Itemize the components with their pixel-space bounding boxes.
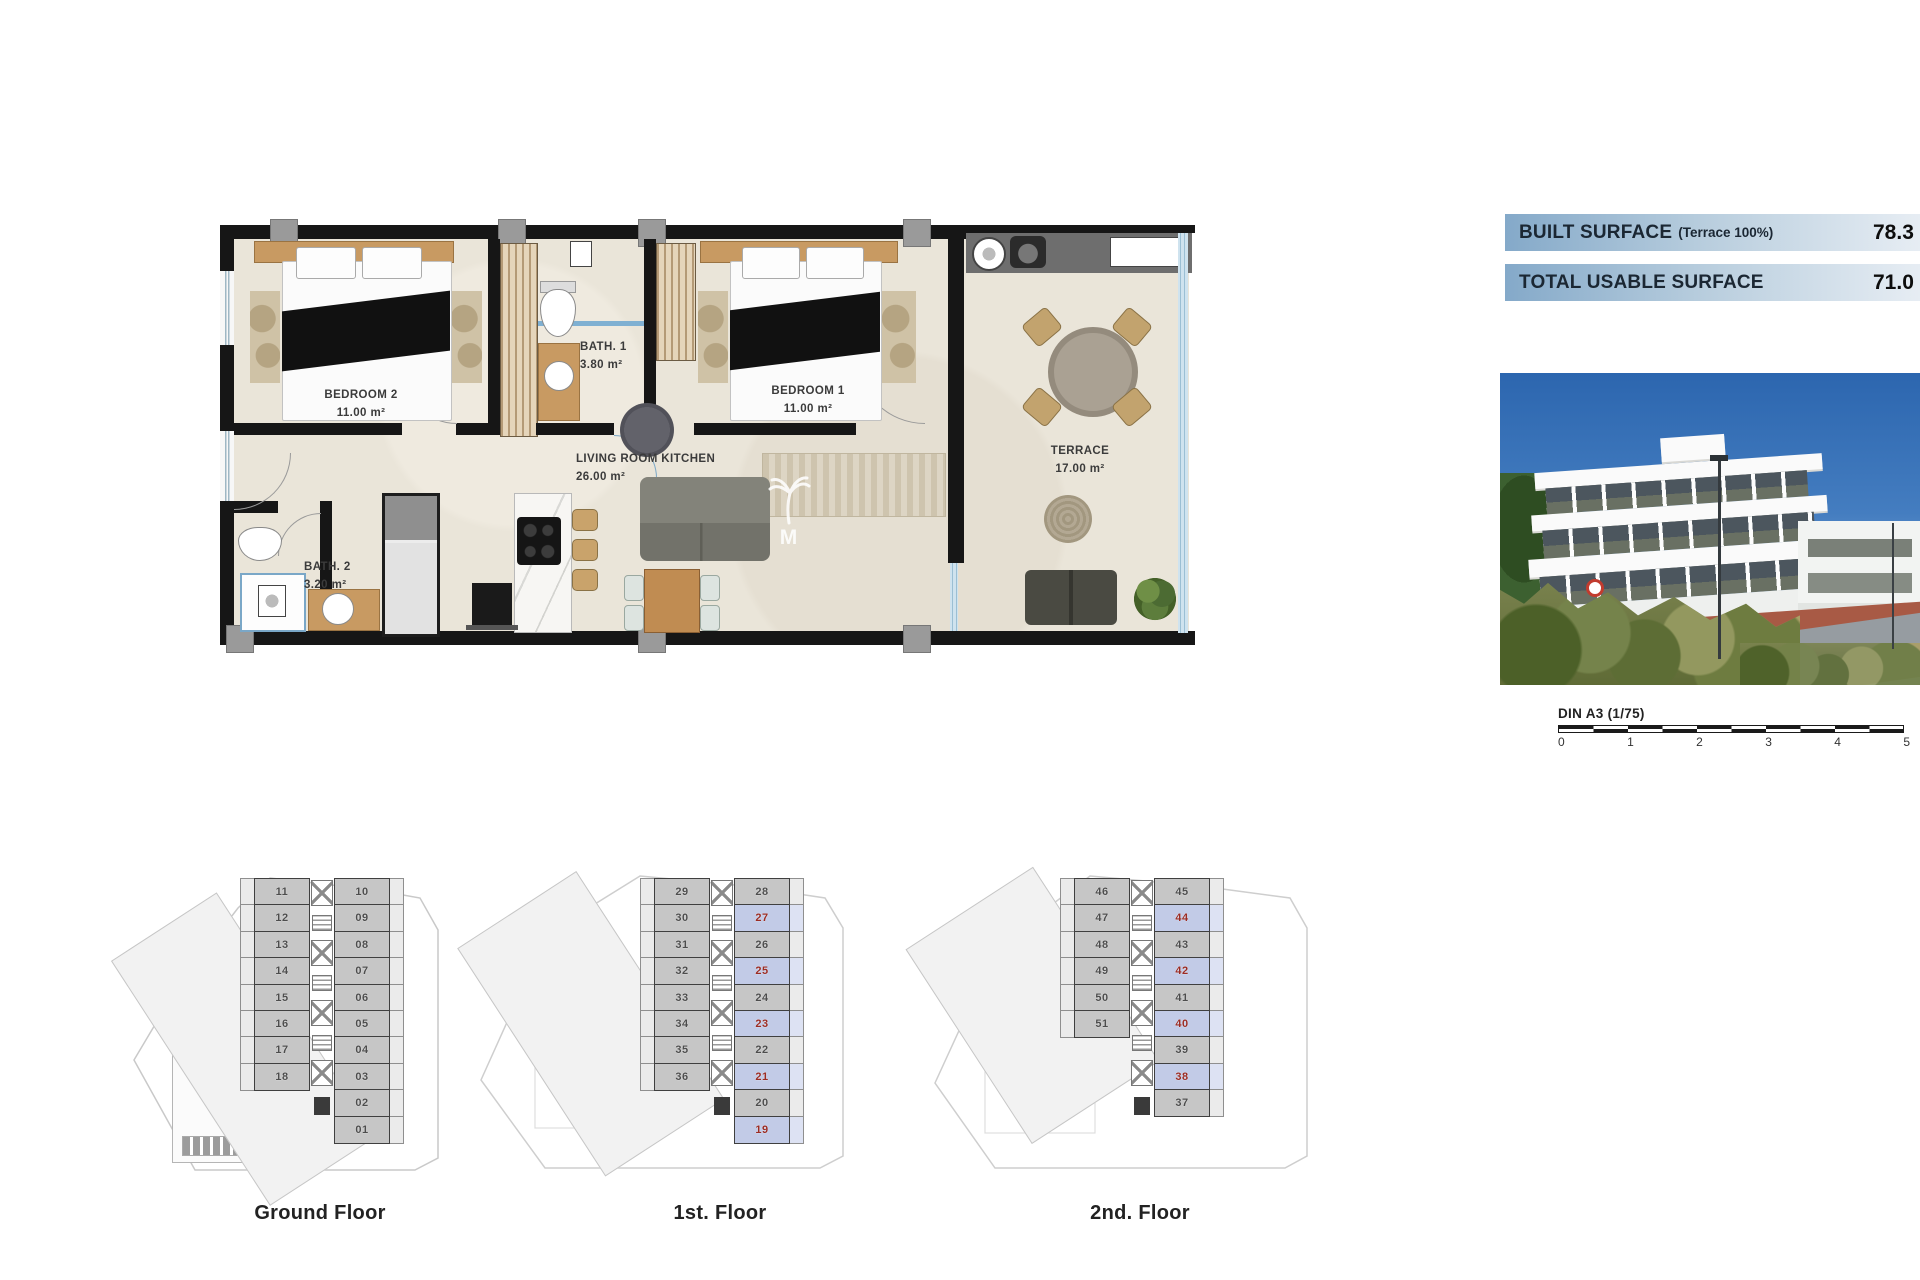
usable-surface-value: 71.0 bbox=[1873, 271, 1914, 295]
room-name: BEDROOM 2 bbox=[306, 387, 416, 405]
unit-row-14: 14 bbox=[240, 957, 310, 985]
unit-44: 44 bbox=[1154, 904, 1210, 932]
stool bbox=[572, 539, 598, 561]
unit-14: 14 bbox=[254, 957, 310, 985]
unit-number: 39 bbox=[1175, 1044, 1188, 1056]
unit-01: 01 bbox=[334, 1116, 390, 1144]
unit-row-48: 48 bbox=[1060, 931, 1130, 959]
service-shaft bbox=[714, 1097, 730, 1115]
tick: 3 bbox=[1765, 735, 1772, 749]
unit-34: 34 bbox=[654, 1010, 710, 1038]
unit-51: 51 bbox=[1074, 1010, 1130, 1038]
kitchen-tall-unit bbox=[382, 493, 440, 637]
watermark-letter: M bbox=[765, 526, 813, 550]
elevator-icon bbox=[711, 1060, 733, 1086]
unit-05: 05 bbox=[334, 1010, 390, 1038]
room-name: BEDROOM 1 bbox=[748, 383, 868, 401]
unit-42: 42 bbox=[1154, 957, 1210, 985]
unit-45: 45 bbox=[1154, 878, 1210, 906]
stairs-icon bbox=[712, 915, 732, 931]
left-units: 464748495051 bbox=[1060, 878, 1130, 1038]
unit-number: 37 bbox=[1175, 1097, 1188, 1109]
palm-logo-watermark: M bbox=[765, 473, 813, 550]
unit-48: 48 bbox=[1074, 931, 1130, 959]
usable-surface-label: TOTAL USABLE SURFACE bbox=[1505, 272, 1764, 294]
unit-number: 49 bbox=[1095, 965, 1108, 977]
round-rug bbox=[620, 403, 674, 457]
unit-entry-cell bbox=[1210, 1036, 1224, 1064]
unit-row-13: 13 bbox=[240, 931, 310, 959]
bath1-basin bbox=[544, 361, 574, 391]
unit-number: 46 bbox=[1095, 886, 1108, 898]
building-photo bbox=[1500, 373, 1920, 685]
tick: 0 bbox=[1558, 735, 1565, 749]
bed2-rug-left bbox=[250, 291, 280, 383]
unit-50: 50 bbox=[1074, 984, 1130, 1012]
unit-number: 14 bbox=[275, 965, 288, 977]
unit-40: 40 bbox=[1154, 1010, 1210, 1038]
unit-entry-cell bbox=[1210, 1089, 1224, 1117]
water-heater-icon bbox=[258, 585, 286, 617]
unit-entry-cell bbox=[240, 984, 254, 1012]
unit-row-11: 11 bbox=[240, 878, 310, 906]
window-left-2 bbox=[220, 431, 234, 501]
unit-entry-cell bbox=[640, 931, 654, 959]
core bbox=[1130, 878, 1154, 1115]
tv-stand bbox=[466, 625, 518, 630]
unit-entry-cell bbox=[240, 878, 254, 906]
unit-entry-cell bbox=[1210, 984, 1224, 1012]
scale-bar-ticks: 0 1 2 3 4 5 bbox=[1558, 735, 1910, 749]
built-surface-row: BUILT SURFACE (Terrace 100%) 78.3 bbox=[1505, 214, 1920, 251]
plan-sheet: BEDROOM 2 11.00 m² BATH. 1 3.80 m² BEDRO… bbox=[0, 0, 1920, 1280]
elevator-icon bbox=[711, 1000, 733, 1026]
unit-number: 41 bbox=[1175, 992, 1188, 1004]
unit-number: 40 bbox=[1175, 1018, 1188, 1030]
unit-entry-cell bbox=[1210, 1010, 1224, 1038]
unit-30: 30 bbox=[654, 904, 710, 932]
unit-entry-cell bbox=[1060, 878, 1074, 906]
unit-row-12: 12 bbox=[240, 904, 310, 932]
unit-number: 51 bbox=[1095, 1018, 1108, 1030]
floor-label: 2nd. Floor bbox=[1000, 1202, 1280, 1225]
unit-43: 43 bbox=[1154, 931, 1210, 959]
elevator-icon bbox=[1131, 1000, 1153, 1026]
unit-09: 09 bbox=[334, 904, 390, 932]
unit-number: 05 bbox=[355, 1018, 368, 1030]
right-units: 454443424140393837 bbox=[1154, 878, 1224, 1117]
tick: 4 bbox=[1834, 735, 1841, 749]
wardrobe-bedroom1 bbox=[656, 243, 696, 361]
stairs-icon bbox=[312, 1035, 332, 1051]
unit-entry-cell bbox=[1060, 1010, 1074, 1038]
unit-row-36: 36 bbox=[640, 1063, 710, 1091]
unit-number: 13 bbox=[275, 939, 288, 951]
unit-entry-cell bbox=[1210, 904, 1224, 932]
unit-row-15: 15 bbox=[240, 984, 310, 1012]
tick: 5 bbox=[1903, 735, 1910, 749]
unit-number: 45 bbox=[1175, 886, 1188, 898]
built-surface-sublabel: (Terrace 100%) bbox=[1678, 225, 1773, 240]
unit-number: 15 bbox=[275, 992, 288, 1004]
wall-bath1 bbox=[536, 423, 614, 435]
unit-number: 04 bbox=[355, 1044, 368, 1056]
unit-number: 17 bbox=[275, 1044, 288, 1056]
stool bbox=[572, 509, 598, 531]
unit-02: 02 bbox=[334, 1089, 390, 1117]
unit-entry-cell bbox=[640, 984, 654, 1012]
stairs-icon bbox=[1132, 1035, 1152, 1051]
unit-15: 15 bbox=[254, 984, 310, 1012]
elevator-icon bbox=[711, 940, 733, 966]
dining-chair bbox=[624, 605, 644, 631]
elevator-icon bbox=[1131, 880, 1153, 906]
unit-49: 49 bbox=[1074, 957, 1130, 985]
terrace-glazing bbox=[1178, 233, 1188, 633]
unit-entry-cell bbox=[1210, 957, 1224, 985]
unit-07: 07 bbox=[334, 957, 390, 985]
unit-entry-cell bbox=[1060, 957, 1074, 985]
lamp-head bbox=[1710, 455, 1728, 461]
scale-bar-label: DIN A3 (1/75) bbox=[1558, 706, 1910, 721]
unit-row-51: 51 bbox=[1060, 1010, 1130, 1038]
unit-41: 41 bbox=[1154, 984, 1210, 1012]
bath1-label: BATH. 1 3.80 m² bbox=[580, 339, 660, 375]
unit-37: 37 bbox=[1154, 1089, 1210, 1117]
unit-16: 16 bbox=[254, 1010, 310, 1038]
unit-number: 50 bbox=[1095, 992, 1108, 1004]
room-area: 3.20 m² bbox=[304, 577, 384, 595]
wall-left bbox=[220, 225, 234, 271]
unit-35: 35 bbox=[654, 1036, 710, 1064]
floor-plan-second: 6362 464748495051 454443424140393837 2nd… bbox=[745, 868, 1320, 1240]
room-area: 3.80 m² bbox=[580, 357, 660, 375]
unit-46: 46 bbox=[1074, 878, 1130, 906]
unit-entry-cell bbox=[640, 957, 654, 985]
unit-number: 18 bbox=[275, 1071, 288, 1083]
living-label: LIVING ROOM KITCHEN 26.00 m² bbox=[576, 451, 736, 487]
service-shaft bbox=[314, 1097, 330, 1115]
dining-chair bbox=[624, 575, 644, 601]
unit-number: 30 bbox=[675, 912, 688, 924]
unit-number: 01 bbox=[355, 1124, 368, 1136]
unit-number: 11 bbox=[276, 886, 289, 898]
unit-number: 47 bbox=[1095, 912, 1108, 924]
wall-bedroom2 bbox=[234, 423, 402, 435]
unit-18: 18 bbox=[254, 1063, 310, 1091]
round-sign bbox=[1586, 579, 1604, 597]
washer-icon bbox=[972, 237, 1006, 271]
shower-fixture bbox=[570, 241, 592, 267]
unit-row-34: 34 bbox=[640, 1010, 710, 1038]
service-shaft bbox=[1134, 1097, 1150, 1115]
bed1-rug-left bbox=[698, 291, 728, 383]
unit-47: 47 bbox=[1074, 904, 1130, 932]
unit-03: 03 bbox=[334, 1063, 390, 1091]
foreground-vegetation bbox=[1740, 643, 1920, 685]
elevator-icon bbox=[311, 880, 333, 906]
unit-row-40: 40 bbox=[1154, 1010, 1224, 1038]
tick: 1 bbox=[1627, 735, 1634, 749]
unit-entry-cell bbox=[1060, 984, 1074, 1012]
unit-row-44: 44 bbox=[1154, 904, 1224, 932]
unit-08: 08 bbox=[334, 931, 390, 959]
unit-row-29: 29 bbox=[640, 878, 710, 906]
scale-bar-ruler bbox=[1558, 725, 1904, 733]
unit-row-32: 32 bbox=[640, 957, 710, 985]
unit-row-18: 18 bbox=[240, 1063, 310, 1091]
wall-bottom bbox=[220, 631, 1195, 645]
unit-13: 13 bbox=[254, 931, 310, 959]
dining-chair bbox=[700, 575, 720, 601]
unit-10: 10 bbox=[334, 878, 390, 906]
unit-row-42: 42 bbox=[1154, 957, 1224, 985]
wall-top bbox=[220, 225, 970, 239]
terrace-round-rug bbox=[1044, 495, 1092, 543]
elevator-icon bbox=[311, 1000, 333, 1026]
unit-36: 36 bbox=[654, 1063, 710, 1091]
unit-entry-cell bbox=[240, 931, 254, 959]
unit-number: 48 bbox=[1095, 939, 1108, 951]
elevator-icon bbox=[311, 940, 333, 966]
unit-entry-cell bbox=[640, 878, 654, 906]
wall-left bbox=[220, 345, 234, 431]
bed2-pillow bbox=[362, 247, 422, 279]
unit-row-35: 35 bbox=[640, 1036, 710, 1064]
wall-left bbox=[220, 501, 234, 645]
bed1-rug-right bbox=[882, 291, 916, 383]
elevator-icon bbox=[711, 880, 733, 906]
terrace-sliding-door bbox=[950, 563, 958, 631]
unit-entry-cell bbox=[1060, 931, 1074, 959]
unit-17: 17 bbox=[254, 1036, 310, 1064]
bedroom1-label: BEDROOM 1 11.00 m² bbox=[748, 383, 868, 419]
bed1-pillow bbox=[742, 247, 800, 279]
room-name: BATH. 1 bbox=[580, 339, 660, 357]
bedroom2-label: BEDROOM 2 11.00 m² bbox=[306, 387, 416, 423]
unit-number: 35 bbox=[675, 1044, 688, 1056]
elevator-icon bbox=[1131, 1060, 1153, 1086]
unit-number: 03 bbox=[355, 1071, 368, 1083]
unit-number: 10 bbox=[355, 886, 368, 898]
palm-tree-icon bbox=[767, 473, 811, 525]
bed2-pillow bbox=[296, 247, 356, 279]
room-name: TERRACE bbox=[1038, 443, 1122, 461]
unit-columns: 1112131415161718 10090807060504030201 bbox=[240, 878, 404, 1144]
unit-entry-cell bbox=[240, 1063, 254, 1091]
unit-row-41: 41 bbox=[1154, 984, 1224, 1012]
built-surface-label: BUILT SURFACE bbox=[1505, 222, 1672, 244]
core bbox=[710, 878, 734, 1115]
unit-columns: 464748495051 454443424140393837 bbox=[1060, 878, 1224, 1117]
room-name: LIVING ROOM KITCHEN bbox=[576, 451, 736, 469]
unit-number: 43 bbox=[1175, 939, 1188, 951]
wall-bedroom1 bbox=[694, 423, 856, 435]
dryer-icon bbox=[1010, 236, 1046, 268]
room-name: BATH. 2 bbox=[304, 559, 384, 577]
wall-terrace-top bbox=[955, 225, 1195, 233]
sofa bbox=[640, 477, 770, 561]
room-area: 11.00 m² bbox=[748, 401, 868, 419]
apartment-floor-plan: BEDROOM 2 11.00 m² BATH. 1 3.80 m² BEDRO… bbox=[220, 225, 1195, 685]
unit-entry-cell bbox=[1060, 904, 1074, 932]
unit-entry-cell bbox=[1210, 931, 1224, 959]
usable-surface-row: TOTAL USABLE SURFACE 71.0 bbox=[1505, 264, 1920, 301]
unit-39: 39 bbox=[1154, 1036, 1210, 1064]
bed1-pillow bbox=[806, 247, 864, 279]
lamp-post bbox=[1892, 523, 1894, 649]
elevator-icon bbox=[1131, 940, 1153, 966]
stairs-icon bbox=[1132, 915, 1152, 931]
unit-entry-cell bbox=[240, 957, 254, 985]
unit-number: 07 bbox=[355, 965, 368, 977]
unit-number: 08 bbox=[355, 939, 368, 951]
stool bbox=[572, 569, 598, 591]
unit-row-31: 31 bbox=[640, 931, 710, 959]
unit-32: 32 bbox=[654, 957, 710, 985]
surface-panel: BUILT SURFACE (Terrace 100%) 78.3 TOTAL … bbox=[1505, 214, 1920, 310]
unit-row-16: 16 bbox=[240, 1010, 310, 1038]
pillar bbox=[903, 219, 931, 247]
cooktop bbox=[517, 517, 561, 565]
unit-number: 09 bbox=[355, 912, 368, 924]
bed2-rug-right bbox=[452, 291, 482, 383]
unit-entry-cell bbox=[1210, 878, 1224, 906]
unit-entry-cell bbox=[240, 1010, 254, 1038]
plant bbox=[1132, 573, 1178, 625]
stairs-icon bbox=[712, 1035, 732, 1051]
unit-number: 02 bbox=[355, 1097, 368, 1109]
unit-row-33: 33 bbox=[640, 984, 710, 1012]
window-left-1 bbox=[220, 271, 234, 345]
unit-row-43: 43 bbox=[1154, 931, 1224, 959]
unit-number: 33 bbox=[675, 992, 688, 1004]
unit-row-30: 30 bbox=[640, 904, 710, 932]
unit-number: 32 bbox=[675, 965, 688, 977]
unit-row-46: 46 bbox=[1060, 878, 1130, 906]
unit-entry-cell bbox=[640, 904, 654, 932]
unit-number: 36 bbox=[675, 1071, 688, 1083]
tick: 2 bbox=[1696, 735, 1703, 749]
terrace-label: TERRACE 17.00 m² bbox=[1038, 443, 1122, 479]
unit-number: 16 bbox=[275, 1018, 288, 1030]
unit-number: 38 bbox=[1175, 1071, 1188, 1083]
core bbox=[310, 878, 334, 1115]
unit-row-45: 45 bbox=[1154, 878, 1224, 906]
scale-bar: DIN A3 (1/75) 0 1 2 3 4 5 bbox=[1558, 706, 1910, 764]
unit-entry-cell bbox=[640, 1063, 654, 1091]
room-area: 11.00 m² bbox=[306, 405, 416, 423]
unit-number: 31 bbox=[675, 939, 688, 951]
stairs-icon bbox=[312, 915, 332, 931]
unit-number: 44 bbox=[1175, 912, 1188, 924]
unit-11: 11 bbox=[254, 878, 310, 906]
bath2-label: BATH. 2 3.20 m² bbox=[304, 559, 384, 595]
stairs-icon bbox=[1132, 975, 1152, 991]
built-surface-value: 78.3 bbox=[1873, 221, 1914, 245]
unit-entry-cell bbox=[640, 1010, 654, 1038]
unit-entry-cell bbox=[640, 1036, 654, 1064]
wardrobe-bedroom2 bbox=[500, 243, 538, 437]
unit-06: 06 bbox=[334, 984, 390, 1012]
unit-entry-cell bbox=[240, 1036, 254, 1064]
room-area: 17.00 m² bbox=[1038, 461, 1122, 479]
unit-29: 29 bbox=[654, 878, 710, 906]
bath2-basin bbox=[322, 593, 354, 625]
unit-number: 06 bbox=[355, 992, 368, 1004]
unit-row-50: 50 bbox=[1060, 984, 1130, 1012]
unit-entry-cell bbox=[240, 904, 254, 932]
dining-chair bbox=[700, 605, 720, 631]
lamp-post bbox=[1718, 459, 1721, 659]
left-units: 1112131415161718 bbox=[240, 878, 310, 1091]
dining-table bbox=[644, 569, 700, 633]
unit-row-49: 49 bbox=[1060, 957, 1130, 985]
unit-row-17: 17 bbox=[240, 1036, 310, 1064]
unit-row-38: 38 bbox=[1154, 1063, 1224, 1091]
unit-number: 42 bbox=[1175, 965, 1188, 977]
unit-number: 34 bbox=[675, 1018, 688, 1030]
elevator-icon bbox=[311, 1060, 333, 1086]
unit-12: 12 bbox=[254, 904, 310, 932]
unit-38: 38 bbox=[1154, 1063, 1210, 1091]
tv bbox=[472, 583, 512, 627]
terrace-bench bbox=[1025, 570, 1117, 625]
unit-number: 12 bbox=[275, 912, 288, 924]
left-units: 2930313233343536 bbox=[640, 878, 710, 1091]
unit-row-47: 47 bbox=[1060, 904, 1130, 932]
unit-number: 29 bbox=[675, 886, 688, 898]
unit-04: 04 bbox=[334, 1036, 390, 1064]
stairs-icon bbox=[712, 975, 732, 991]
stairs-icon bbox=[312, 975, 332, 991]
wall-bedroom2-right bbox=[488, 239, 500, 435]
wall-terrace bbox=[948, 225, 964, 563]
unit-row-39: 39 bbox=[1154, 1036, 1224, 1064]
unit-33: 33 bbox=[654, 984, 710, 1012]
unit-entry-cell bbox=[1210, 1063, 1224, 1091]
skylight bbox=[1110, 237, 1188, 267]
unit-row-37: 37 bbox=[1154, 1089, 1224, 1117]
pillar bbox=[903, 625, 931, 653]
room-area: 26.00 m² bbox=[576, 469, 736, 487]
unit-31: 31 bbox=[654, 931, 710, 959]
